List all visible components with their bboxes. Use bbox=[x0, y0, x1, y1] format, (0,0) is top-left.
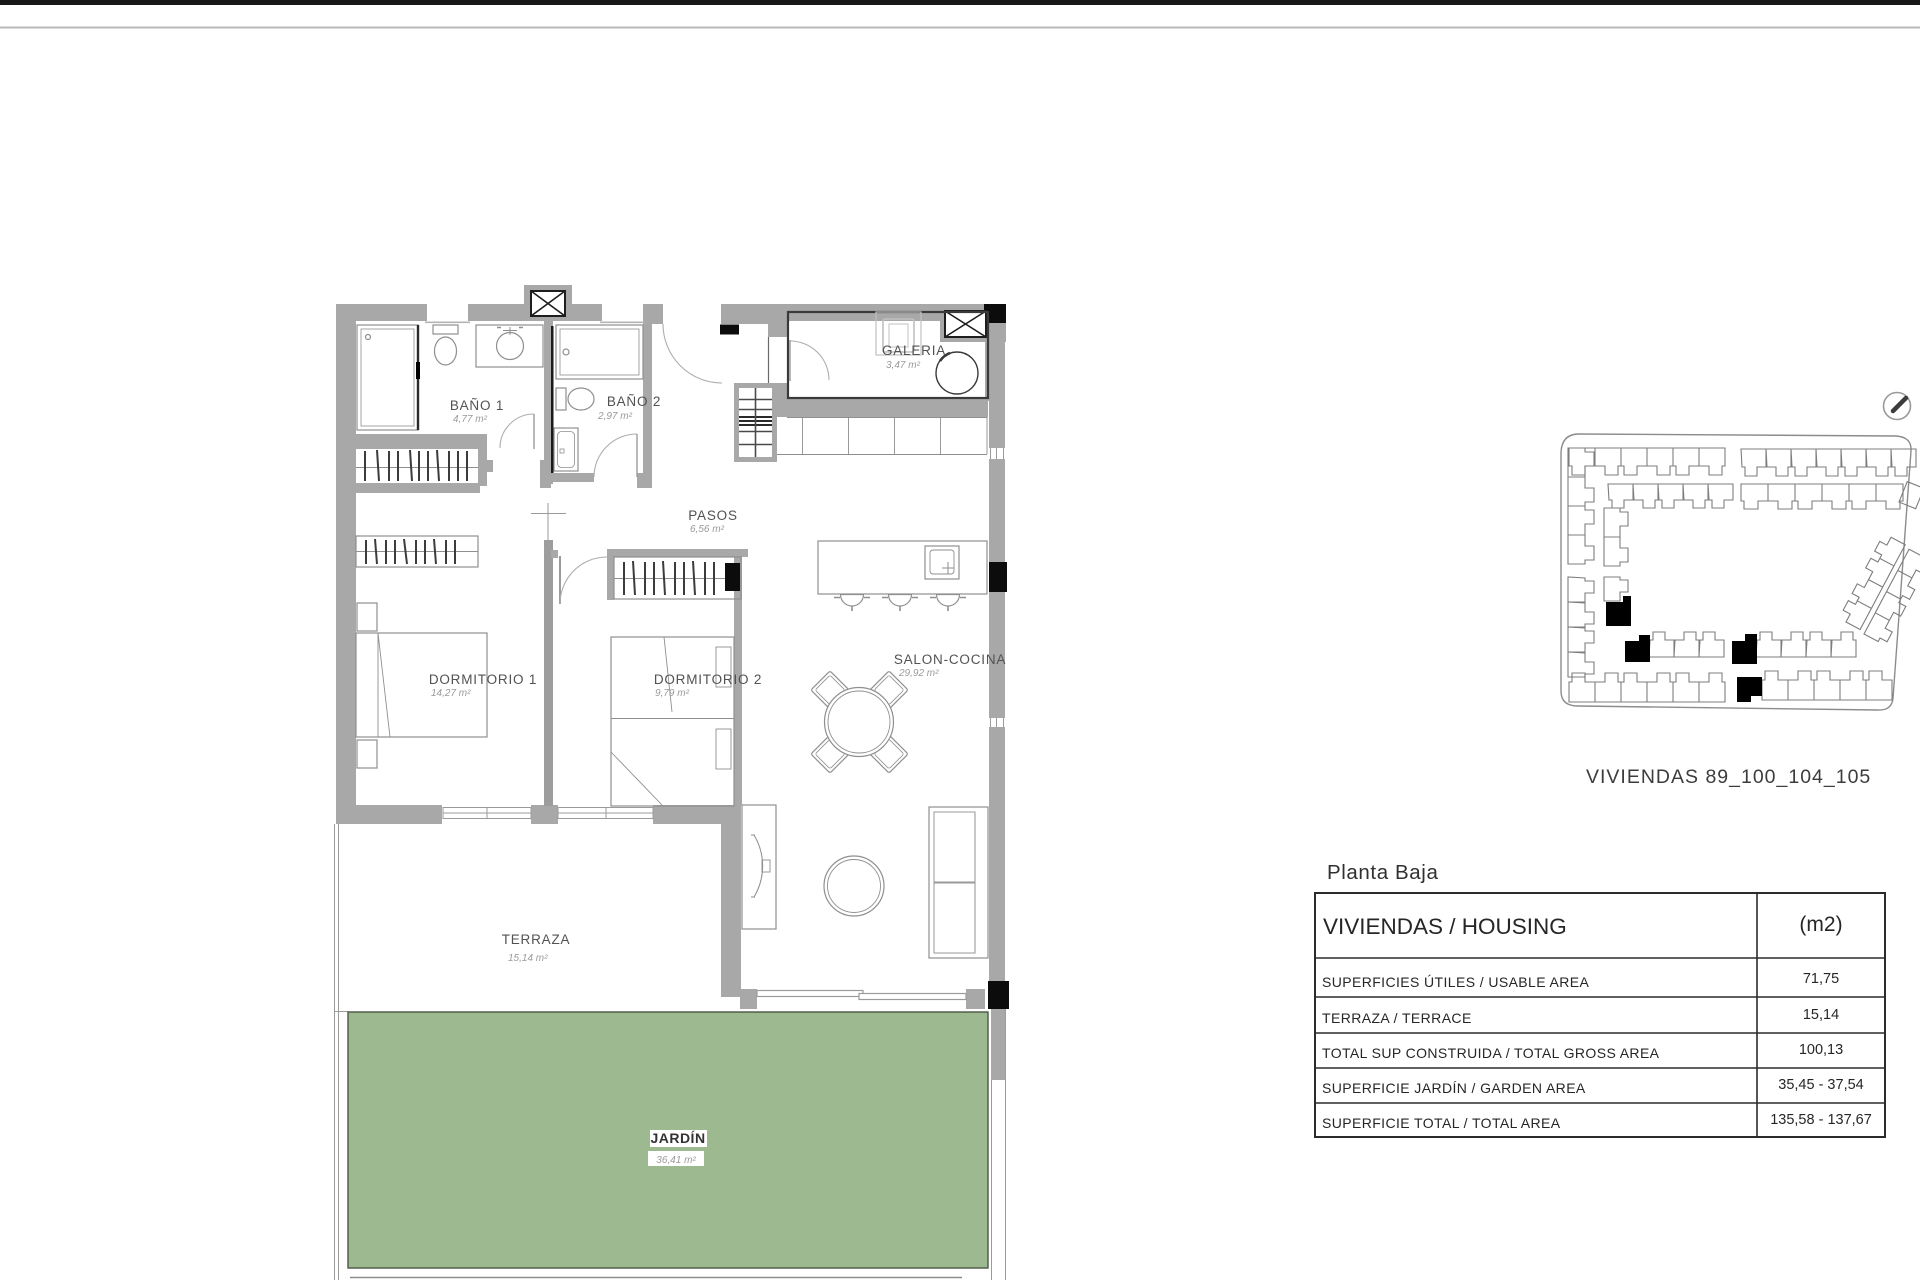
svg-text:29,92 m²: 29,92 m² bbox=[898, 668, 939, 679]
svg-text:135,58 - 137,67: 135,58 - 137,67 bbox=[1770, 1112, 1872, 1128]
svg-text:4,77 m²: 4,77 m² bbox=[453, 414, 488, 425]
svg-text:15,14: 15,14 bbox=[1803, 1007, 1839, 1023]
svg-text:SUPERFICIE JARDÍN / GARDEN ARE: SUPERFICIE JARDÍN / GARDEN AREA bbox=[1322, 1080, 1586, 1096]
svg-text:SUPERFICIES ÚTILES / USABLE AR: SUPERFICIES ÚTILES / USABLE AREA bbox=[1322, 974, 1589, 990]
svg-text:BAÑO 1: BAÑO 1 bbox=[450, 398, 504, 413]
svg-text:SUPERFICIE TOTAL / TOTAL AREA: SUPERFICIE TOTAL / TOTAL AREA bbox=[1322, 1115, 1561, 1131]
svg-text:DORMITORIO 1: DORMITORIO 1 bbox=[429, 672, 537, 687]
svg-text:SALON-COCINA: SALON-COCINA bbox=[894, 652, 1006, 667]
svg-text:2,97 m²: 2,97 m² bbox=[597, 411, 633, 422]
svg-text:15,14 m²: 15,14 m² bbox=[508, 953, 548, 964]
svg-text:6,56 m²: 6,56 m² bbox=[690, 524, 725, 535]
svg-text:9,79 m²: 9,79 m² bbox=[655, 688, 690, 699]
svg-text:3,47 m²: 3,47 m² bbox=[886, 360, 921, 371]
svg-text:Planta Baja: Planta Baja bbox=[1327, 861, 1438, 884]
svg-text:TERRAZA / TERRACE: TERRAZA / TERRACE bbox=[1322, 1010, 1472, 1026]
svg-text:VIVIENDAS / HOUSING: VIVIENDAS / HOUSING bbox=[1323, 914, 1567, 939]
svg-text:(m2): (m2) bbox=[1799, 913, 1842, 936]
svg-text:14,27 m²: 14,27 m² bbox=[431, 688, 471, 699]
svg-text:36,41 m²: 36,41 m² bbox=[656, 1155, 696, 1166]
svg-text:VIVIENDAS 89_100_104_105: VIVIENDAS 89_100_104_105 bbox=[1586, 766, 1871, 788]
svg-text:JARDÍN: JARDÍN bbox=[650, 1130, 705, 1146]
svg-text:PASOS: PASOS bbox=[688, 508, 738, 523]
svg-text:35,45 - 37,54: 35,45 - 37,54 bbox=[1778, 1077, 1863, 1093]
svg-text:TERRAZA: TERRAZA bbox=[502, 932, 571, 947]
svg-text:GALERIA: GALERIA bbox=[882, 343, 946, 358]
svg-text:71,75: 71,75 bbox=[1803, 971, 1839, 987]
svg-text:DORMITORIO 2: DORMITORIO 2 bbox=[654, 672, 762, 687]
svg-text:100,13: 100,13 bbox=[1799, 1042, 1843, 1058]
svg-text:BAÑO 2: BAÑO 2 bbox=[607, 394, 661, 409]
svg-text:TOTAL SUP CONSTRUIDA / TOTAL G: TOTAL SUP CONSTRUIDA / TOTAL GROSS AREA bbox=[1322, 1045, 1660, 1061]
